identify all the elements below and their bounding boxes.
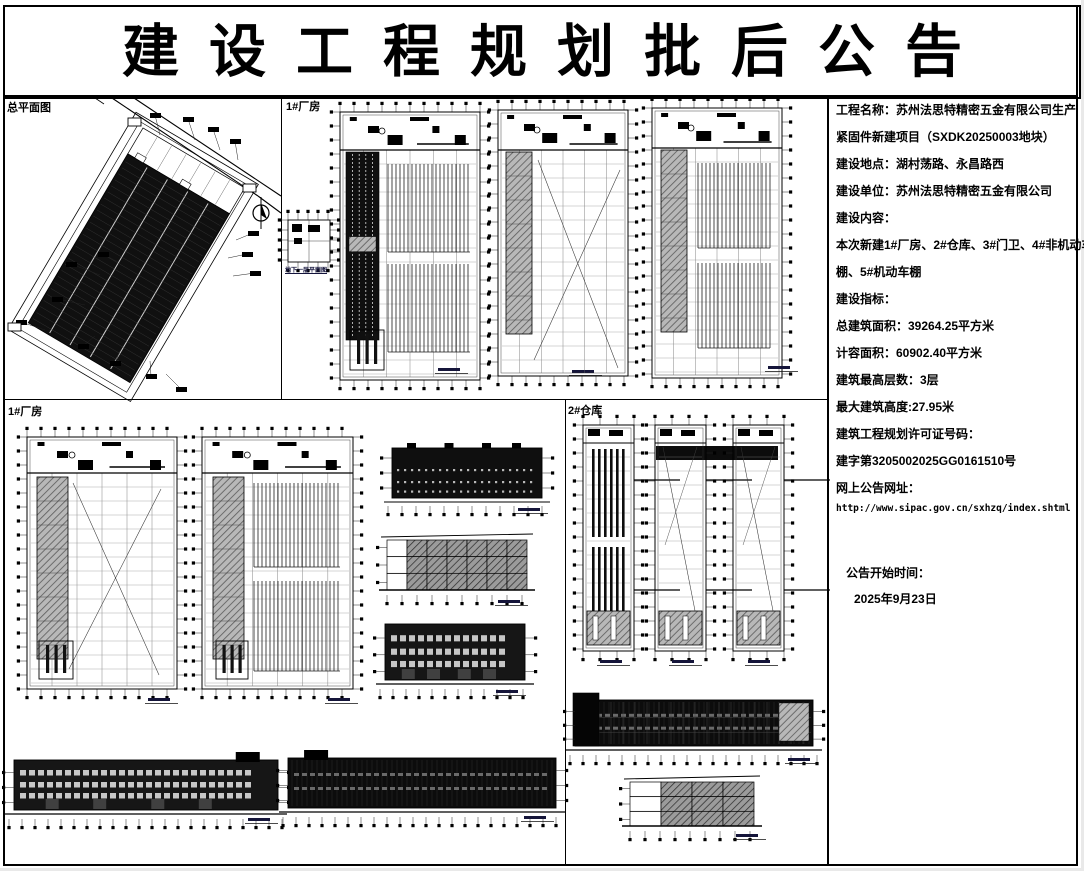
info-line: 建字第3205002025GG0161510号 [829, 448, 1078, 475]
info-line: 建设单位：苏州法思特精密五金有限公司 [829, 178, 1078, 205]
info-line: 建筑工程规划许可证号码： [829, 421, 1078, 448]
site-plan-label: 总平面图 [7, 99, 51, 115]
notice-time-label: 公告开始时间： [829, 560, 1078, 586]
notice-start-date: 2025年9月23日 [829, 586, 1078, 612]
project-info-panel: 工程名称：苏州法思特精密五金有限公司生产 紧固件新建项目（SXDK2025000… [829, 97, 1078, 865]
info-line: 工程名称：苏州法思特精密五金有限公司生产 [829, 97, 1078, 124]
info-line: 计容面积：60902.40平方米 [829, 340, 1078, 367]
basement-plan-caption: 地下一层平面图 [285, 265, 327, 274]
factory-top-label: 1#厂房 [286, 98, 320, 114]
info-line: 建设地点：湖村荡路、永昌路西 [829, 151, 1078, 178]
info-line: 总建筑面积：39264.25平方米 [829, 313, 1078, 340]
info-line: 建筑最高层数：3层 [829, 367, 1078, 394]
info-line: 网上公告网址： [829, 475, 1078, 502]
announcement-page: 建设工程规划批后公告 总平面图 1#厂房 1#厂房 2#仓库 地下一层平面图 工… [0, 0, 1084, 871]
warehouse-label: 2#仓库 [568, 402, 602, 418]
announcement-url: http://www.sipac.gov.cn/sxhzq/index.shtm… [829, 502, 1078, 516]
info-line: 棚、5#机动车棚 [829, 259, 1078, 286]
info-line: 紧固件新建项目（SXDK20250003地块） [829, 124, 1078, 151]
factory-bottom-label: 1#厂房 [8, 403, 42, 419]
info-line: 建设指标： [829, 286, 1078, 313]
info-line: 本次新建1#厂房、2#仓库、3#门卫、4#非机动车 [829, 232, 1078, 259]
info-line: 建设内容： [829, 205, 1078, 232]
info-line: 最大建筑高度:27.95米 [829, 394, 1078, 421]
